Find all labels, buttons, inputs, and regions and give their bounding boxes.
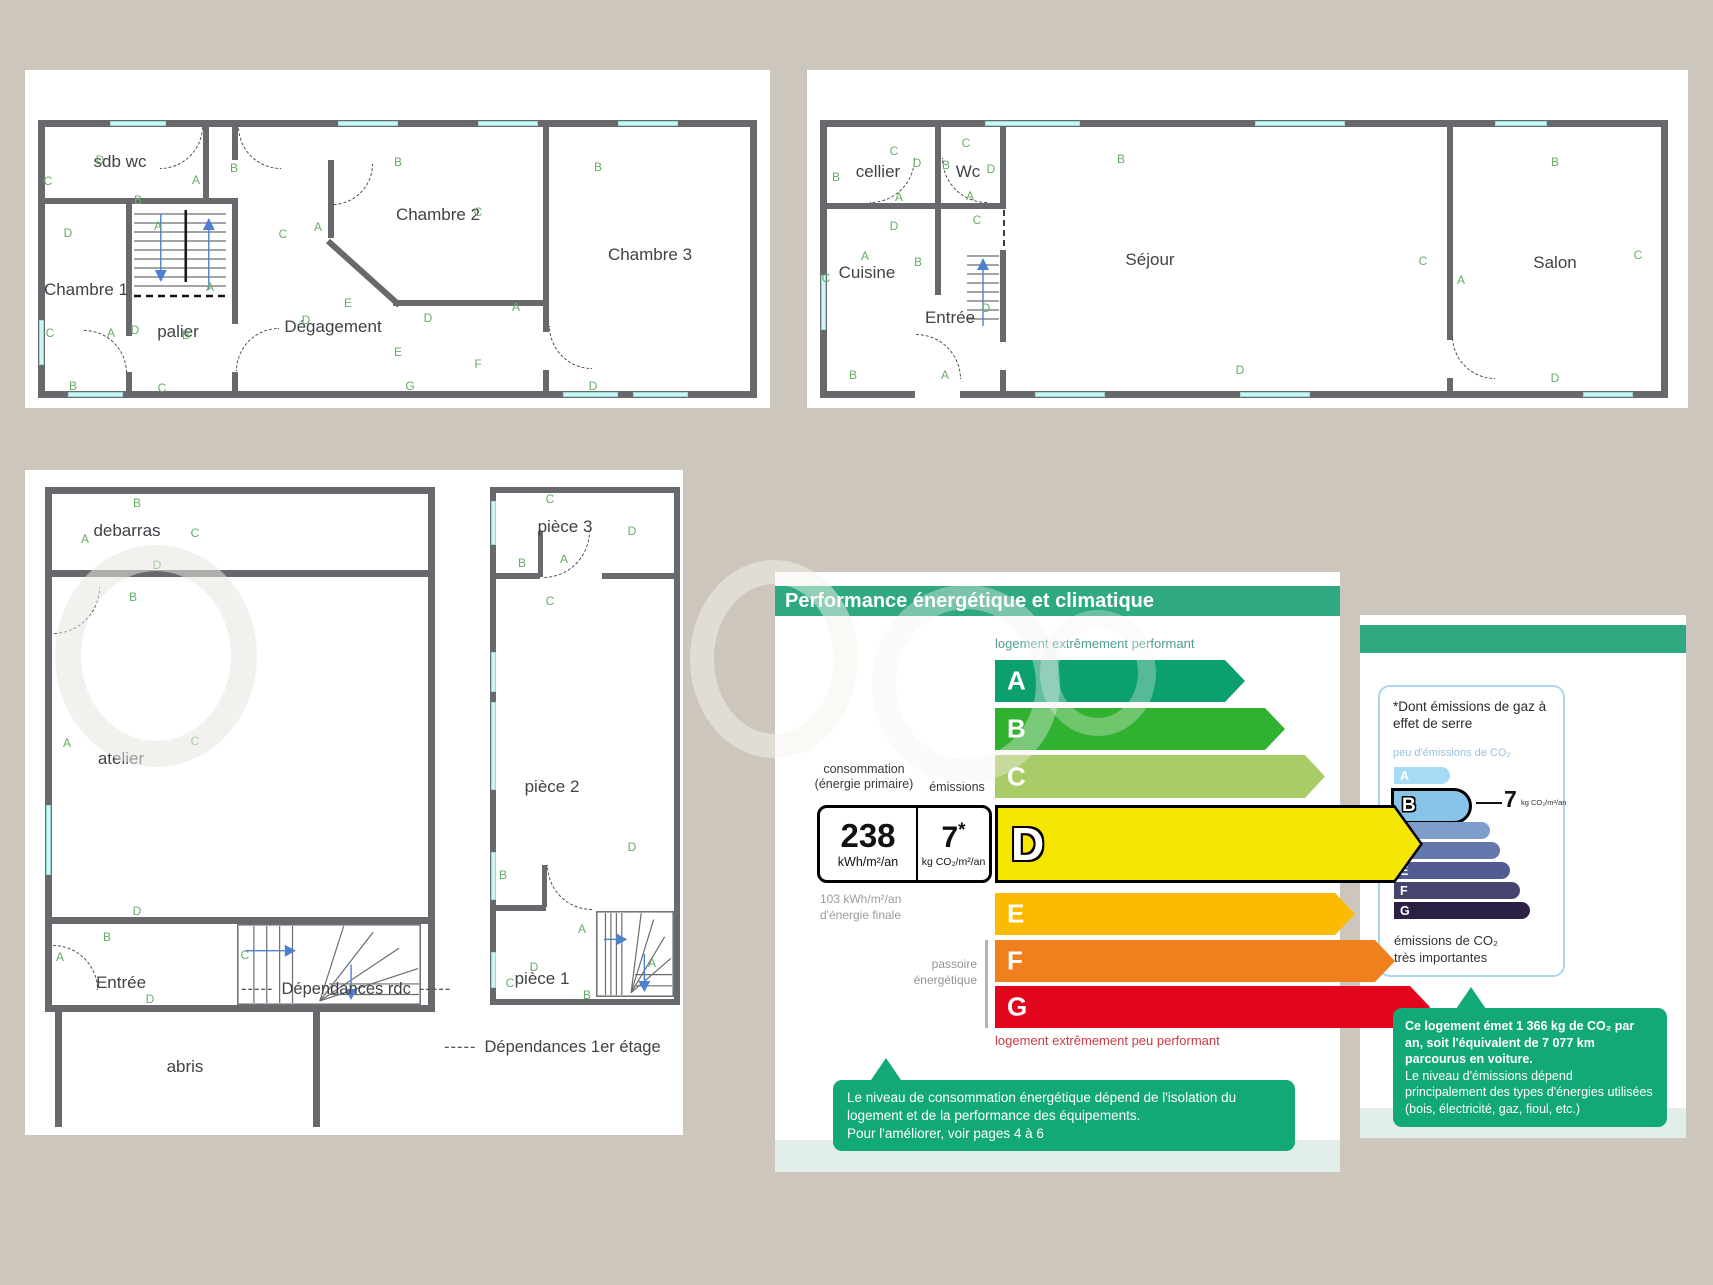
ges-class-letter: F xyxy=(1400,884,1408,898)
wall xyxy=(313,1012,320,1127)
dpe-consumption-unit: kWh/m²/an xyxy=(838,855,898,869)
wall-letter-marker: A xyxy=(107,326,115,340)
wall-letter-marker: A xyxy=(966,189,974,203)
dpe-class-letter: A xyxy=(1007,666,1026,697)
ges-best-label: peu d'émissions de CO₂ xyxy=(1393,747,1511,759)
wall-letter-marker: D xyxy=(64,226,73,240)
door-arc xyxy=(547,865,592,910)
dpe-emissions-label: émissions xyxy=(921,780,993,795)
room-label: pièce 1 xyxy=(515,969,570,989)
wall-letter-marker: C xyxy=(962,136,971,150)
wall-letter-marker: C xyxy=(1634,248,1643,262)
ges-rating-letter: B xyxy=(1402,795,1416,817)
wall-letter-marker: C xyxy=(546,492,555,506)
wall xyxy=(602,573,680,579)
room-label: atelier xyxy=(98,749,144,769)
wall xyxy=(490,573,540,579)
room-label: Chambre 2 xyxy=(396,205,480,225)
wall-letter-marker: C xyxy=(973,213,982,227)
ges-class-letter: G xyxy=(1400,904,1410,918)
wall-letter-marker: D xyxy=(890,219,899,233)
ges-note-title: *Dont émissions de gaz à effet de serre xyxy=(1393,699,1553,733)
wall xyxy=(45,487,52,1012)
floorplan-dependances-etage: pièce 3pièce 2pièce 1CDBACBDADCBA xyxy=(490,487,680,1005)
ges-panel: *Dont émissions de gaz à effet de serre … xyxy=(1360,615,1686,1138)
wall-letter-marker: A xyxy=(206,280,214,294)
callout-pointer xyxy=(1456,987,1486,1009)
ges-header xyxy=(1360,625,1686,653)
wall xyxy=(490,487,680,493)
wall-letter-marker: C xyxy=(44,174,53,188)
wall-letter-marker: F xyxy=(474,357,481,371)
wall-letter-marker: A xyxy=(648,956,656,970)
window-segment xyxy=(491,852,496,900)
window-segment xyxy=(491,952,496,988)
wall-letter-marker: C xyxy=(191,734,200,748)
dashed-wall xyxy=(1003,210,1007,246)
dpe-final-energy: 103 kWh/m²/an d'énergie finale xyxy=(820,892,901,923)
wall-letter-marker: D xyxy=(982,301,991,315)
door-arc xyxy=(84,330,127,373)
wall-letter-marker: D xyxy=(1236,363,1245,377)
room-label: debarras xyxy=(93,521,160,541)
dpe-class-letter: B xyxy=(1007,714,1026,745)
wall xyxy=(820,120,827,398)
dpe-value-box: 238 kWh/m²/an 7* kg CO₂/m²/an xyxy=(817,805,992,883)
wall xyxy=(203,120,209,198)
window-segment xyxy=(1495,121,1547,126)
wall xyxy=(820,391,915,398)
wall-letter-marker: A xyxy=(81,532,89,546)
ges-worst-label: émissions de CO₂ très importantes xyxy=(1394,933,1498,967)
wall xyxy=(674,487,680,1005)
dpe-rating-letter: D xyxy=(1011,817,1044,871)
wall-letter-marker: C xyxy=(46,326,55,340)
window-segment xyxy=(46,805,51,875)
wall-letter-marker: A xyxy=(578,922,586,936)
caption-dep-etage-label: Dépendances 1er étage xyxy=(484,1038,660,1056)
wall-letter-marker: B xyxy=(230,161,238,175)
wall-letter-marker: B xyxy=(134,193,142,207)
door-arc xyxy=(549,326,592,369)
wall-letter-marker: C xyxy=(474,205,483,219)
wall-letter-marker: D xyxy=(131,323,140,337)
room-label: pièce 3 xyxy=(538,517,593,537)
wall-letter-marker: B xyxy=(129,590,137,604)
wall-letter-marker: C xyxy=(241,948,250,962)
wall-letter-marker: A xyxy=(1457,273,1465,287)
wall xyxy=(1000,370,1006,398)
room-label: Chambre 1 xyxy=(44,280,128,300)
room-label: palier xyxy=(157,322,199,342)
dpe-panel: Performance énergétique et climatique lo… xyxy=(775,572,1340,1172)
wall-letter-marker: E xyxy=(344,296,352,310)
wall xyxy=(1000,250,1006,342)
wall-letter-marker: A xyxy=(895,190,903,204)
wall-letter-marker: B xyxy=(69,379,77,393)
room-label: Entrée xyxy=(96,973,146,993)
ges-unit: kg CO₂/m²/an xyxy=(1521,798,1567,807)
dpe-consumption-value: 238 xyxy=(840,819,895,852)
wall xyxy=(1447,120,1453,340)
wall-letter-marker: C xyxy=(890,144,899,158)
window-segment xyxy=(338,121,398,126)
caption-dependances-rdc: -----Dépendances rdc----- xyxy=(233,980,459,999)
ges-callout-bold: Ce logement émet 1 366 kg de CO₂ par an,… xyxy=(1405,1018,1655,1068)
caption-dep-rdc-label: Dépendances rdc xyxy=(281,980,410,998)
wall-letter-marker: D xyxy=(146,992,155,1006)
wall-diagonal xyxy=(326,239,401,308)
wall xyxy=(45,917,435,924)
dpe-emissions-value: 7* xyxy=(941,821,965,853)
wall-letter-marker: D xyxy=(530,960,539,974)
dpe-class-bar-B: B xyxy=(995,708,1285,750)
dash-decoration: ----- xyxy=(241,980,273,998)
window-segment xyxy=(985,121,1080,126)
wall xyxy=(542,865,547,907)
dpe-class-bar-F: F xyxy=(995,940,1395,982)
room-label: Salon xyxy=(1533,253,1576,273)
wall xyxy=(750,120,757,398)
wall-letter-marker: B xyxy=(832,170,840,184)
window-segment xyxy=(478,121,538,126)
door-arc xyxy=(916,334,961,379)
passoire-bracket xyxy=(985,940,988,1028)
wall-letter-marker: A xyxy=(63,736,71,750)
dpe-worst-label: logement extrêmement peu performant xyxy=(995,1033,1220,1048)
wall xyxy=(232,372,238,398)
wall-letter-marker: D xyxy=(628,840,637,854)
staircase xyxy=(596,911,674,997)
wall-letter-marker: B xyxy=(914,255,922,269)
room-label: Cuisine xyxy=(839,263,896,283)
listing-composite-image: sdb wcChambre 1palierDégagementChambre 2… xyxy=(0,0,1713,1285)
dpe-passoire-label: passoire énergétique xyxy=(859,956,977,988)
wall xyxy=(935,120,941,203)
wall-letter-marker: B xyxy=(103,930,111,944)
dpe-best-label: logement extrêmement performant xyxy=(995,636,1194,651)
wall-letter-marker: A xyxy=(314,220,322,234)
room-label: Wc xyxy=(956,162,981,182)
dash-decoration: ----- xyxy=(444,1038,476,1056)
wall-letter-marker: A xyxy=(56,950,64,964)
wall-letter-marker: B xyxy=(594,160,602,174)
wall-letter-marker: B xyxy=(942,158,950,172)
dpe-class-bar-G: G xyxy=(995,986,1430,1028)
ges-callout: Ce logement émet 1 366 kg de CO₂ par an,… xyxy=(1393,1008,1667,1127)
wall-letter-marker: B xyxy=(1117,152,1125,166)
room-label: Chambre 3 xyxy=(608,245,692,265)
window-segment xyxy=(491,702,496,790)
wall-letter-marker: B xyxy=(849,368,857,382)
wall-letter-marker: A xyxy=(560,552,568,566)
ges-class-bar-E: E xyxy=(1394,862,1510,879)
callout-pointer xyxy=(871,1058,901,1080)
wall-letter-marker: D xyxy=(987,162,996,176)
wall xyxy=(1447,378,1453,398)
dpe-callout: Le niveau de consommation énergétique dé… xyxy=(833,1080,1295,1151)
room-label: abris xyxy=(167,1057,204,1077)
wall-letter-marker: D xyxy=(302,313,311,327)
window-segment xyxy=(491,501,496,545)
wall xyxy=(543,370,549,398)
wall-letter-marker: D xyxy=(913,156,922,170)
window-segment xyxy=(1255,121,1345,126)
wall xyxy=(1000,120,1006,203)
room-label: Entrée xyxy=(925,308,975,328)
ges-class-bar-F: F xyxy=(1394,882,1520,899)
window-segment xyxy=(1035,392,1105,397)
dpe-class-letter: G xyxy=(1007,992,1027,1023)
wall-letter-marker: B xyxy=(182,328,190,342)
emissions-star: * xyxy=(958,820,965,841)
ges-callout-rest: Le niveau d'émissions dépend principalem… xyxy=(1405,1068,1655,1118)
door-arc xyxy=(1452,336,1495,379)
wall-letter-marker: B xyxy=(394,155,402,169)
floorplan-rdc: cellierWcCuisineEntréeSéjourSalonCBDBCDA… xyxy=(820,120,1668,398)
dpe-class-letter: E xyxy=(1007,899,1024,930)
dpe-callout-text: Le niveau de consommation énergétique dé… xyxy=(847,1089,1281,1142)
wall xyxy=(45,570,435,577)
room-label: Dégagement xyxy=(284,317,381,337)
door-arc xyxy=(332,164,373,205)
dpe-class-bar-E: E xyxy=(995,893,1355,935)
wall-letter-marker: B xyxy=(518,556,526,570)
wall-letter-marker: C xyxy=(506,976,515,990)
wall-letter-marker: D xyxy=(96,153,105,167)
wall-letter-marker: C xyxy=(546,594,555,608)
room-label: Séjour xyxy=(1125,250,1174,270)
dpe-emissions-unit: kg CO₂/m²/an xyxy=(922,856,986,868)
wall xyxy=(820,203,1006,209)
wall-letter-marker: C xyxy=(158,381,167,395)
wall-letter-marker: B xyxy=(133,496,141,510)
door-arc xyxy=(160,126,203,169)
wall xyxy=(935,203,941,295)
wall-letter-marker: G xyxy=(405,379,414,393)
wall xyxy=(428,487,435,1012)
dpe-class-bar-C: C xyxy=(995,755,1325,798)
wall xyxy=(232,204,238,324)
wall xyxy=(1661,120,1668,398)
dpe-consumption-label: consommation (énergie primaire) xyxy=(789,762,939,792)
wall xyxy=(393,300,543,306)
wall xyxy=(490,905,546,911)
room-label: pièce 2 xyxy=(525,777,580,797)
dpe-class-letter: F xyxy=(1007,946,1023,977)
dpe-title: Performance énergétique et climatique xyxy=(775,586,1340,616)
window-segment xyxy=(633,392,688,397)
wall-letter-marker: A xyxy=(861,249,869,263)
wall-letter-marker: B xyxy=(1551,155,1559,169)
wall xyxy=(543,120,549,332)
wall-letter-marker: E xyxy=(394,345,402,359)
wall-letter-marker: D xyxy=(424,311,433,325)
dpe-class-bar-A: A xyxy=(995,660,1245,702)
floorplan-dependances-rdc: debarrasatelierEntréeabrisBACDBACDBACD xyxy=(45,487,435,1127)
window-segment xyxy=(1240,392,1310,397)
wall xyxy=(126,372,132,398)
ges-value: 7 xyxy=(1504,786,1517,813)
wall-letter-marker: C xyxy=(279,227,288,241)
door-arc xyxy=(238,126,281,169)
door-arc xyxy=(53,587,100,634)
wall-letter-marker: D xyxy=(153,558,162,572)
window-segment xyxy=(39,320,44,365)
door-arc xyxy=(236,328,279,371)
wall-letter-marker: D xyxy=(1551,371,1560,385)
caption-dependances-1er-etage: -----Dépendances 1er étage xyxy=(436,1038,661,1057)
wall-letter-marker: D xyxy=(628,524,637,538)
window-segment xyxy=(491,652,496,692)
wall-letter-marker: A xyxy=(941,368,949,382)
ges-class-letter: A xyxy=(1400,769,1409,783)
ges-class-bar-A: A xyxy=(1394,767,1450,784)
wall-letter-marker: C xyxy=(191,526,200,540)
wall-letter-marker: A xyxy=(154,219,162,233)
wall-letter-marker: B xyxy=(583,988,591,1002)
dpe-class-letter: C xyxy=(1007,761,1026,792)
window-segment xyxy=(110,121,166,126)
dpe-rated-bar-fill xyxy=(998,808,1420,880)
wall xyxy=(45,487,435,494)
wall-letter-marker: C xyxy=(1419,254,1428,268)
wall-letter-marker: D xyxy=(589,379,598,393)
wall-letter-marker: D xyxy=(133,904,142,918)
ges-value-connector xyxy=(1476,802,1502,804)
wall-letter-marker: A xyxy=(192,173,200,187)
wall xyxy=(45,1005,435,1012)
floorplan-etage: sdb wcChambre 1palierDégagementChambre 2… xyxy=(38,120,757,398)
wall-letter-marker: C xyxy=(822,271,831,285)
room-label: cellier xyxy=(856,162,900,182)
wall-letter-marker: A xyxy=(512,300,520,314)
wall xyxy=(55,1012,62,1127)
ges-class-bar-G: G xyxy=(1394,902,1530,919)
wall-letter-marker: B xyxy=(499,868,507,882)
dpe-header: Performance énergétique et climatique xyxy=(775,586,1340,616)
dpe-class-bar-D: D xyxy=(995,805,1423,883)
window-segment xyxy=(618,121,678,126)
dash-decoration: ----- xyxy=(419,980,451,998)
window-segment xyxy=(1583,392,1633,397)
